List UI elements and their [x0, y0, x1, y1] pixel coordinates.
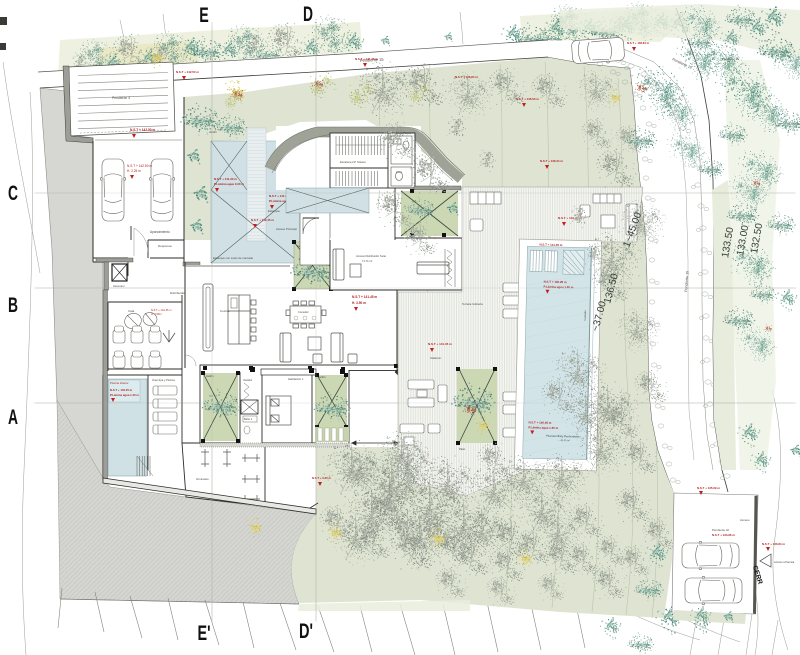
- svg-text:Cascada: Cascada: [583, 310, 587, 321]
- svg-text:Comedor: Comedor: [298, 310, 309, 314]
- svg-text:Cata: Cata: [128, 309, 135, 313]
- svg-text:Baño 1: Baño 1: [244, 417, 253, 421]
- svg-text:71.74 m²: 71.74 m²: [362, 259, 372, 263]
- svg-text:Piscina Interior: Piscina Interior: [110, 381, 129, 385]
- svg-text:Acceso: Acceso: [740, 518, 750, 522]
- svg-text:Patio: Patio: [459, 447, 466, 451]
- svg-text:Aparcamiento: Aparcamiento: [150, 230, 170, 234]
- svg-text:Jardín: Jardín: [318, 375, 326, 379]
- svg-text:H. 2.25 m: H. 2.25 m: [127, 169, 141, 173]
- svg-text:P.Lámina agua 1.40 m: P.Lámina agua 1.40 m: [544, 285, 574, 290]
- svg-text:Habitación 1: Habitación 1: [288, 377, 304, 381]
- svg-text:P.Lámina agua 1.60 m: P.Lámina agua 1.60 m: [528, 425, 558, 430]
- svg-text:N.S.T + 135.09 m: N.S.T + 135.09 m: [697, 486, 720, 490]
- svg-text:N.S.T + 142.45 m: N.S.T + 142.45 m: [251, 218, 274, 222]
- svg-text:Estanque: Estanque: [268, 209, 280, 213]
- svg-text:Acceso Principal: Acceso Principal: [276, 227, 297, 231]
- svg-text:C: C: [8, 182, 18, 205]
- svg-text:H. 2.50m: H. 2.50m: [151, 312, 162, 316]
- svg-text:Aseo: Aseo: [396, 170, 402, 174]
- svg-text:Pendiente 42: Pendiente 42: [712, 528, 729, 532]
- svg-text:N.S.T + 141.45 m: N.S.T + 141.45 m: [539, 243, 562, 248]
- svg-text:Solarium: Solarium: [430, 356, 442, 360]
- svg-text:Pendiente 15: Pendiente 15: [722, 57, 739, 61]
- svg-text:N.S.T + 141.45 m: N.S.T + 141.45 m: [151, 308, 171, 312]
- svg-text:N.S.T + 140.05 m: N.S.T + 140.05 m: [528, 420, 551, 425]
- svg-text:H. 3.50 m: H. 3.50 m: [352, 301, 366, 305]
- svg-text:N.S.T + 0.25 m: N.S.T + 0.25 m: [312, 476, 332, 480]
- svg-text:N.S.T + 141.35 m: N.S.T + 141.35 m: [355, 57, 378, 61]
- svg-text:N.S.T + 140.25 m: N.S.T + 140.25 m: [544, 280, 567, 285]
- svg-text:Estanque con suelo de marcado: Estanque con suelo de marcado: [213, 256, 254, 260]
- svg-text:B: B: [8, 294, 18, 317]
- svg-text:Terraza Cubierta: Terraza Cubierta: [462, 302, 483, 306]
- svg-text:P.Lámina agua 1.40 m: P.Lámina agua 1.40 m: [110, 393, 139, 397]
- svg-text:~ 43.45 m²: ~ 43.45 m²: [558, 439, 570, 442]
- svg-text:Piscina Infinity Desbordante: Piscina Infinity Desbordante: [546, 434, 580, 439]
- svg-text:E: E: [199, 4, 209, 27]
- svg-text:N.S.T + 141.45 m: N.S.T + 141.45 m: [428, 342, 452, 346]
- svg-text:N.S.T + 141.45 m: N.S.T + 141.45 m: [352, 295, 377, 299]
- svg-text:Ascensor: Ascensor: [113, 284, 125, 288]
- svg-text:D': D': [299, 620, 313, 643]
- svg-text:Cocina: Cocina: [220, 309, 230, 313]
- svg-text:N.S.T + 136.34 m: N.S.T + 136.34 m: [540, 159, 563, 163]
- svg-text:Acceso Distribuidor Suite: Acceso Distribuidor Suite: [356, 254, 387, 258]
- svg-text:E': E': [198, 622, 211, 645]
- svg-text:N.S.T + 136.84 m: N.S.T + 136.84 m: [455, 75, 478, 79]
- svg-text:Acceso a Parcela: Acceso a Parcela: [774, 560, 795, 564]
- svg-text:Vestidor: Vestidor: [243, 378, 253, 382]
- svg-text:Gimnasio: Gimnasio: [196, 477, 209, 481]
- svg-text:Pendiente 4: Pendiente 4: [112, 96, 130, 100]
- svg-text:A: A: [8, 406, 18, 429]
- svg-text:N.S.T + 133.84 m: N.S.T + 133.84 m: [762, 542, 785, 546]
- svg-text:N.S.T + 136.84 m: N.S.T + 136.84 m: [627, 41, 650, 45]
- svg-text:N.S.T + 140.25 m: N.S.T + 140.25 m: [110, 388, 133, 392]
- svg-text:N.S.T + 142.50 m: N.S.T + 142.50 m: [176, 70, 199, 74]
- svg-text:N.S.T + 141.30 m: N.S.T + 141.30 m: [214, 177, 237, 181]
- svg-text:P.Lámina agua 0.20 m: P.Lámina agua 0.20 m: [214, 182, 244, 186]
- svg-text:Distribuidor: Distribuidor: [170, 291, 185, 295]
- svg-text:N.S.T + 136.54 m: N.S.T + 136.54 m: [516, 97, 539, 101]
- svg-text:Despensa: Despensa: [158, 244, 172, 248]
- svg-text:Área Spa y Piscina: Área Spa y Piscina: [152, 378, 175, 382]
- svg-text:N.S.T + 142.50 m: N.S.T + 142.50 m: [130, 128, 155, 132]
- svg-text:Escalera p/P. Sótano: Escalera p/P. Sótano: [340, 160, 366, 164]
- svg-text:N.S.T + 142.50 m: N.S.T + 142.50 m: [127, 164, 152, 168]
- svg-text:Jardín: Jardín: [206, 374, 214, 378]
- svg-text:D: D: [303, 3, 313, 26]
- svg-text:N.S.T + 133.96 m: N.S.T + 133.96 m: [712, 533, 735, 537]
- svg-text:Jardín: Jardín: [209, 130, 217, 134]
